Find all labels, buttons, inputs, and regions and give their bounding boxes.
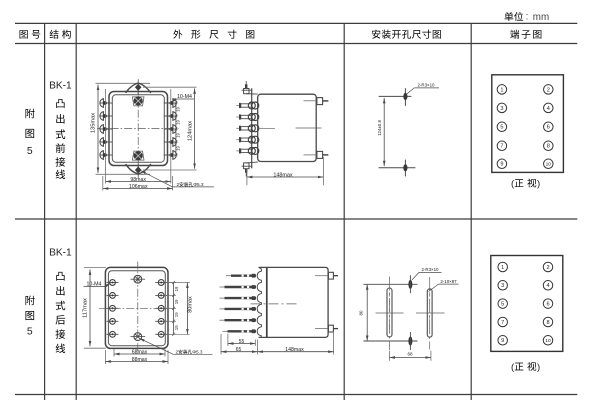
svg-text:117max: 117max — [83, 298, 89, 318]
svg-text:4: 4 — [546, 283, 549, 289]
svg-text:106max: 106max — [129, 184, 148, 190]
svg-text:6: 6 — [546, 302, 549, 308]
svg-text:3: 3 — [501, 283, 504, 289]
svg-text:8: 8 — [547, 144, 550, 150]
svg-text:7: 7 — [500, 144, 503, 150]
svg-text:2-10×87: 2-10×87 — [440, 279, 457, 284]
svg-text:19: 19 — [174, 299, 179, 304]
svg-text:124±0.8: 124±0.8 — [377, 120, 382, 136]
svg-text:8: 8 — [546, 320, 549, 326]
svg-text:2: 2 — [176, 350, 179, 355]
svg-text:3: 3 — [500, 106, 503, 112]
svg-text:148max: 148max — [273, 172, 292, 178]
svg-text:19: 19 — [175, 146, 180, 151]
svg-text:68max: 68max — [132, 349, 148, 355]
svg-text:10: 10 — [546, 162, 552, 168]
svg-text:6: 6 — [547, 125, 550, 131]
svg-text:19: 19 — [175, 133, 180, 138]
svg-text:BK-1: BK-1 — [49, 80, 72, 91]
svg-text:10-M4: 10-M4 — [177, 94, 192, 100]
svg-text:5: 5 — [27, 146, 33, 157]
svg-text:19: 19 — [174, 312, 179, 317]
svg-text:19: 19 — [174, 325, 179, 330]
svg-text:135max: 135max — [91, 113, 97, 133]
svg-text:1: 1 — [500, 87, 503, 93]
svg-text:2: 2 — [546, 265, 549, 271]
svg-text:10: 10 — [545, 338, 551, 344]
svg-text:124max: 124max — [188, 121, 194, 141]
svg-text:5: 5 — [501, 302, 504, 308]
svg-text:80: 80 — [358, 310, 363, 315]
svg-text:9: 9 — [500, 162, 503, 168]
svg-text:BK-1: BK-1 — [49, 248, 72, 259]
svg-text:7: 7 — [501, 320, 504, 326]
svg-text:2: 2 — [547, 87, 550, 93]
svg-text:mm: mm — [533, 12, 549, 23]
svg-text:19: 19 — [175, 120, 180, 125]
svg-text:80max: 80max — [187, 296, 193, 313]
svg-text:2: 2 — [177, 182, 180, 187]
svg-text::: : — [526, 12, 529, 23]
svg-text:19: 19 — [174, 286, 179, 291]
svg-text:1: 1 — [501, 265, 504, 271]
svg-text:19: 19 — [175, 107, 180, 112]
svg-text:): ) — [537, 179, 540, 190]
svg-text:5: 5 — [500, 125, 503, 131]
svg-text:): ) — [537, 362, 540, 373]
svg-text:4: 4 — [547, 106, 550, 112]
svg-text:Φ5.3: Φ5.3 — [192, 350, 203, 355]
svg-text:98max: 98max — [130, 177, 146, 183]
svg-text:2-R3×10: 2-R3×10 — [418, 82, 436, 87]
svg-text:148max: 148max — [285, 347, 304, 353]
svg-text:5: 5 — [27, 327, 33, 338]
svg-text:65: 65 — [236, 347, 242, 353]
svg-text:Φ5.3: Φ5.3 — [193, 182, 204, 187]
svg-text:9: 9 — [501, 338, 504, 344]
svg-text:68: 68 — [407, 351, 413, 356]
svg-text:2-R3×10: 2-R3×10 — [422, 267, 440, 272]
svg-text:55: 55 — [239, 339, 245, 345]
svg-text:88max: 88max — [132, 357, 148, 363]
